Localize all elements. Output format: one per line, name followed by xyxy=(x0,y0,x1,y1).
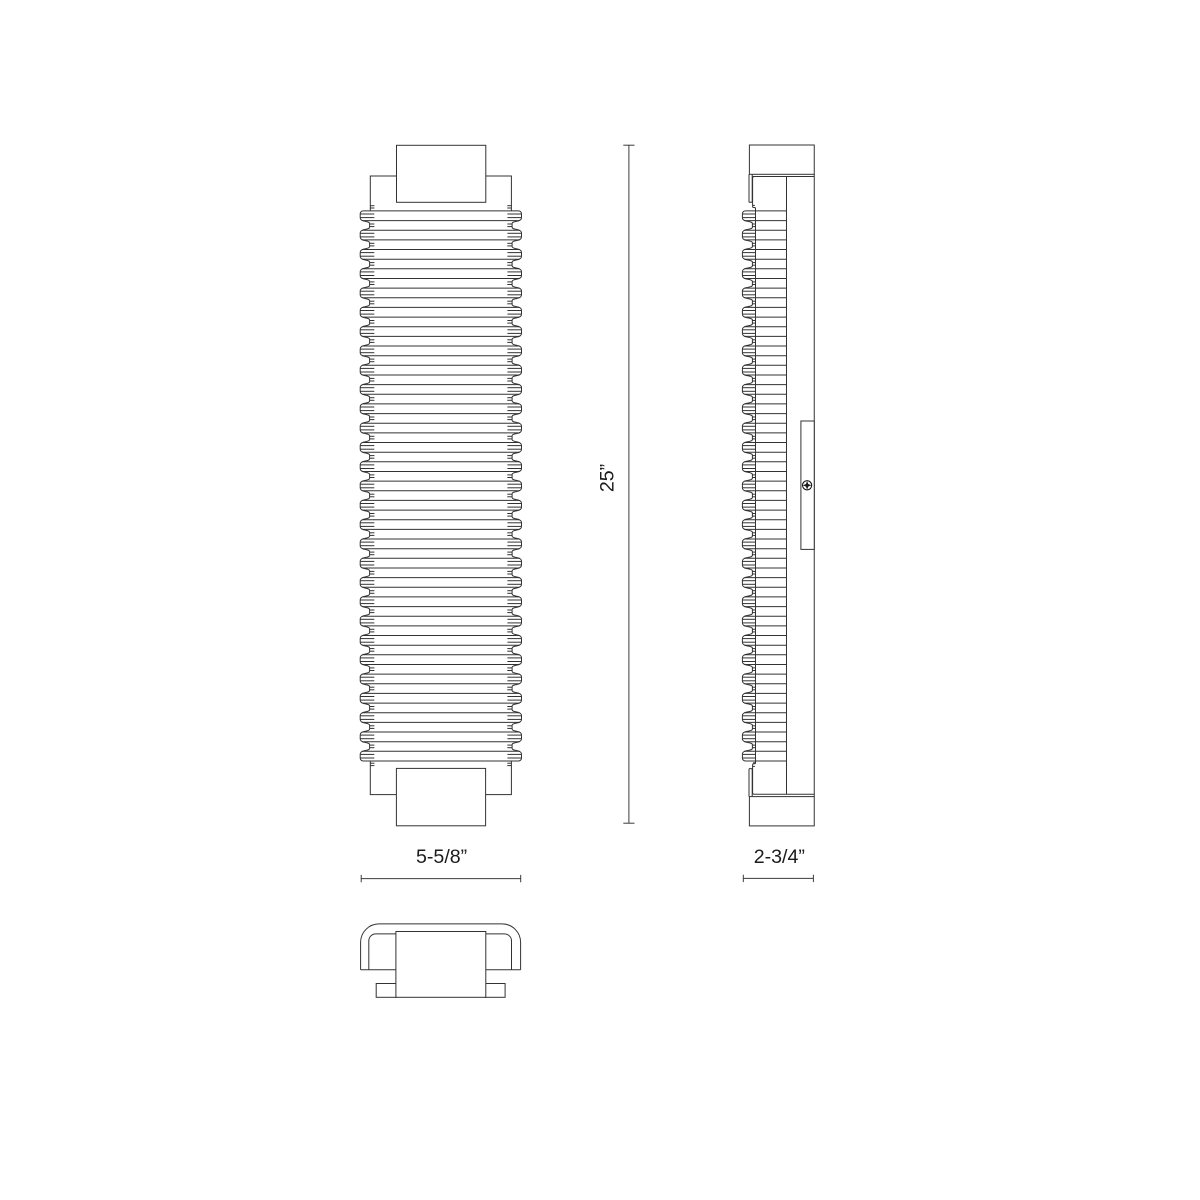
svg-text:25”: 25” xyxy=(596,464,618,492)
svg-text:5-5/8”: 5-5/8” xyxy=(416,846,467,868)
svg-text:2-3/4”: 2-3/4” xyxy=(754,846,805,868)
